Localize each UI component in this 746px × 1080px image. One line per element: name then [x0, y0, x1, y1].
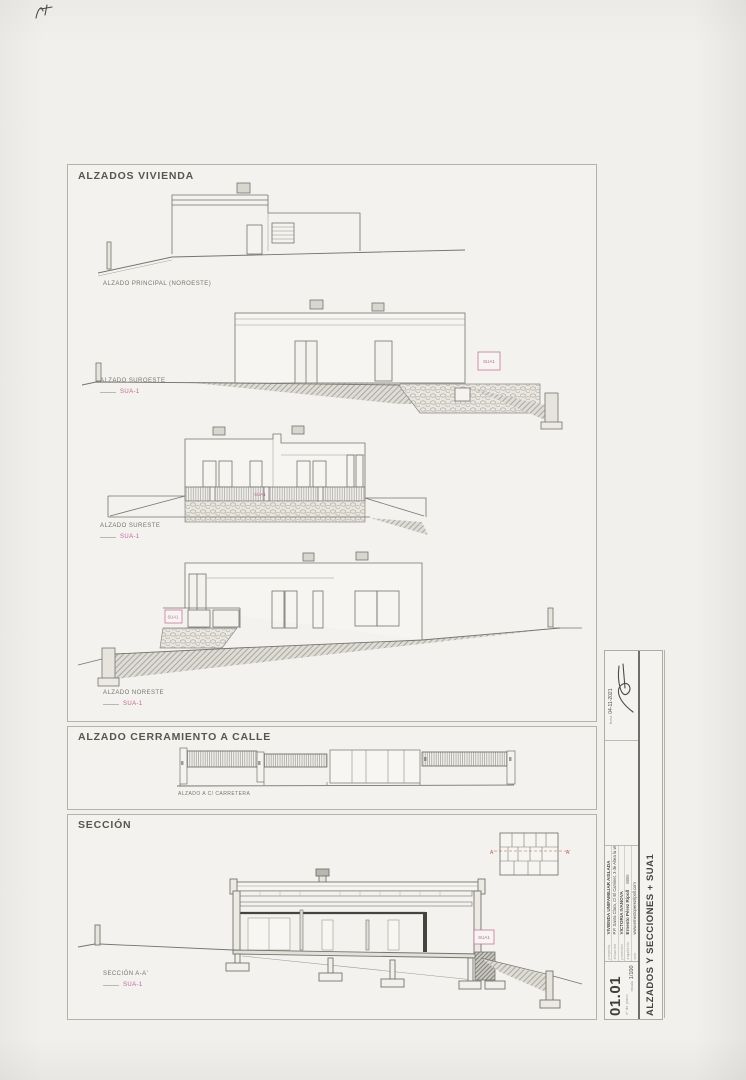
sheet-number-cell: 01.01 nº de plano escala1/100	[605, 961, 638, 1019]
seccion-drawing-label: SECCIÓN A-A'	[103, 971, 148, 977]
cerramiento-drawing	[70, 742, 590, 797]
signature-mark	[613, 656, 637, 718]
svg-text:SUA1: SUA1	[168, 615, 180, 620]
seccion-title: SECCIÓN	[78, 819, 131, 831]
alzado-suroeste-ref: SUA-1	[100, 389, 140, 395]
svg-text:A': A'	[566, 850, 570, 856]
title-block: 01.01 nº de plano escala1/100 proyectoVI…	[604, 650, 663, 1020]
project-info-cell: proyectoVIVIENDA UNIFAMILIAR AISLADA sit…	[605, 845, 638, 961]
alzado-suroeste-label: ALZADO SUROESTE	[100, 378, 165, 384]
legend-dash	[103, 704, 119, 705]
pen-mark	[28, 2, 62, 22]
scale-value: 1/100	[629, 965, 635, 979]
alzado-principal-label: ALZADO PRINCIPAL (NOROESTE)	[103, 281, 211, 287]
alzado-sureste-ref: SUA-1	[100, 534, 140, 540]
svg-text:SUA1: SUA1	[478, 935, 490, 940]
alzado-noreste-label: ALZADO NORESTE	[103, 690, 164, 696]
signature-cell: fecha04-11-2021	[605, 651, 638, 740]
empty-cell	[605, 740, 638, 845]
alzado-suroeste-drawing: SUA1	[70, 295, 590, 430]
svg-text:A: A	[490, 850, 494, 856]
cerramiento-drawing-label: ALZADO A C/ CARRETERA	[178, 791, 250, 797]
alzado-noreste-drawing: SUA1	[70, 548, 590, 698]
sheet-frame-line	[664, 650, 665, 1018]
seccion-drawing: SUA1	[70, 868, 590, 1018]
svg-text:SUA1: SUA1	[483, 359, 495, 364]
field-web: webwww.ernestoperezripoll.com	[632, 846, 637, 961]
legend-dash	[100, 537, 116, 538]
legend-dash	[103, 985, 119, 986]
alzado-sureste-label: ALZADO SURESTE	[100, 523, 160, 529]
legend-dash	[100, 392, 116, 393]
alzado-principal-drawing	[70, 180, 590, 290]
sheet-number-caption: nº de plano	[625, 994, 629, 1015]
seccion-ref: SUA-1	[103, 982, 143, 988]
alzado-noreste-ref: SUA-1	[103, 701, 143, 707]
sheet-title: ALZADOS Y SECCIONES + SUA1	[640, 651, 661, 1019]
svg-text:SUA1: SUA1	[254, 492, 266, 497]
sheet-title-band: ALZADOS Y SECCIONES + SUA1	[638, 651, 662, 1019]
sheet-number: 01.01	[607, 976, 624, 1016]
scale-field: escala1/100	[629, 965, 635, 991]
scanned-plan-sheet: ALZADOS VIVIENDA ALZADO PRINCIPAL (NOROE…	[0, 0, 746, 1080]
